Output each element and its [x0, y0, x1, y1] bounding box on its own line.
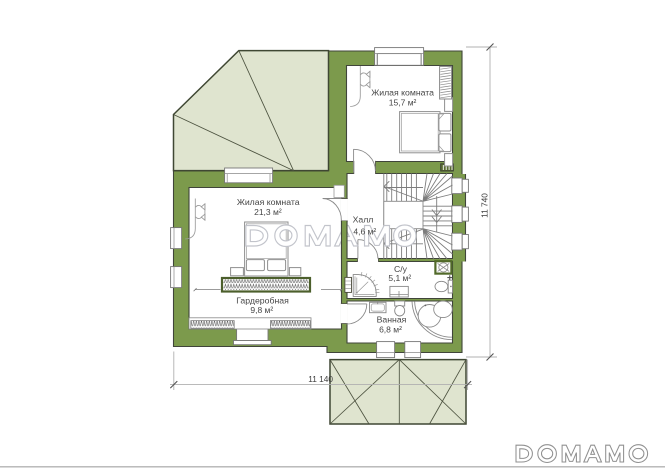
svg-text:21,3 м²: 21,3 м² [254, 207, 282, 217]
svg-text:15,7 м²: 15,7 м² [389, 98, 417, 108]
svg-text:Халл: Халл [353, 214, 374, 224]
svg-text:5,1 м²: 5,1 м² [388, 273, 411, 283]
svg-text:6,8 м²: 6,8 м² [379, 325, 402, 335]
svg-text:4,6 м²: 4,6 м² [353, 227, 376, 237]
svg-text:11 140: 11 140 [308, 374, 333, 384]
svg-text:Жилая комната: Жилая комната [237, 197, 300, 207]
svg-text:11 740: 11 740 [480, 193, 490, 218]
svg-text:Ванная: Ванная [377, 315, 407, 325]
svg-text:Гардеробная: Гардеробная [236, 295, 289, 305]
svg-text:9,8 м²: 9,8 м² [250, 305, 273, 315]
svg-text:Жилая комната: Жилая комната [371, 88, 434, 98]
